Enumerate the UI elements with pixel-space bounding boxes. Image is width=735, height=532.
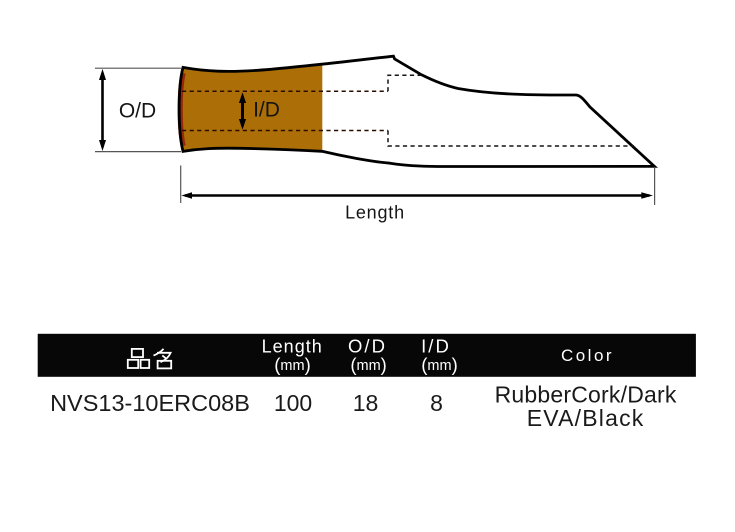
svg-text:(mm): (mm) bbox=[421, 354, 458, 375]
svg-text:8: 8 bbox=[430, 390, 443, 416]
svg-text:EVA/Black: EVA/Black bbox=[527, 405, 645, 431]
svg-text:Color: Color bbox=[561, 346, 614, 365]
svg-text:(mm): (mm) bbox=[350, 354, 387, 375]
svg-text:Length: Length bbox=[262, 337, 323, 357]
svg-text:RubberCork/Dark: RubberCork/Dark bbox=[495, 382, 677, 408]
svg-text:NVS13-10ERC08B: NVS13-10ERC08B bbox=[50, 390, 250, 416]
svg-text:I/D: I/D bbox=[253, 99, 280, 122]
svg-text:Length: Length bbox=[345, 203, 405, 223]
svg-text:O/D: O/D bbox=[119, 100, 156, 123]
svg-text:(mm): (mm) bbox=[274, 354, 311, 375]
svg-text:100: 100 bbox=[274, 390, 312, 416]
svg-text:18: 18 bbox=[353, 390, 379, 416]
